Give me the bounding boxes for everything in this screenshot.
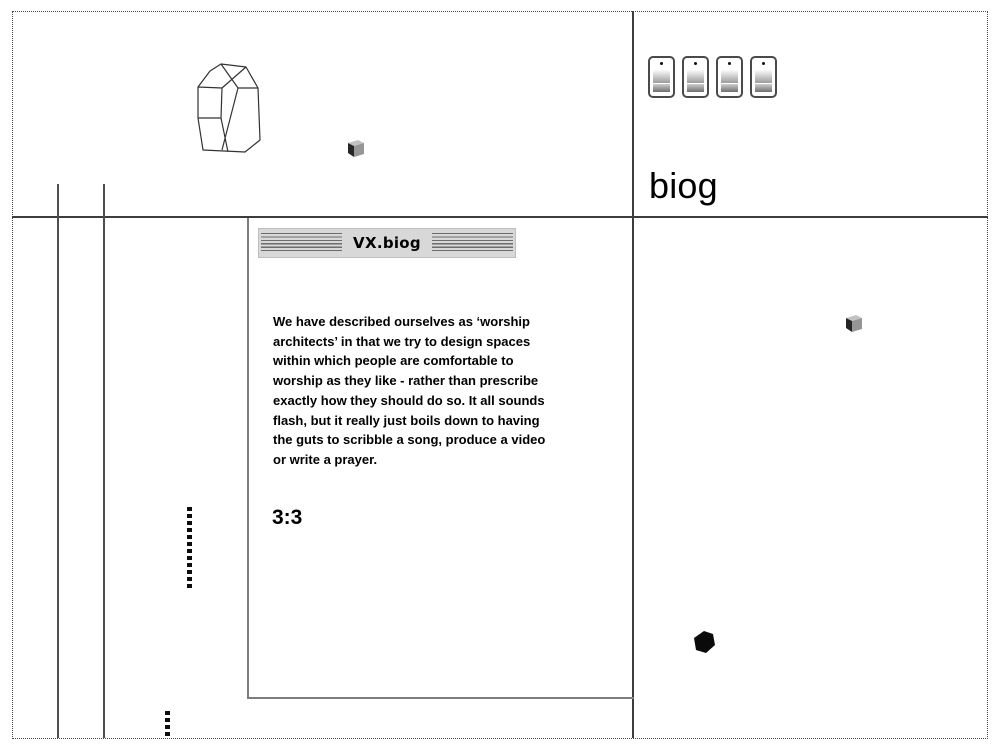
body-text-line: exactly how they should do so. It all so…	[273, 391, 545, 411]
switch-band	[721, 84, 738, 92]
titlebar-stripes-right	[432, 233, 513, 253]
body-text-line: worship as they like - rather than presc…	[273, 371, 545, 391]
black-cube-icon[interactable]	[694, 631, 716, 654]
dotted-line-accent	[187, 507, 192, 588]
switch-dot	[728, 62, 731, 65]
switch-band	[687, 84, 704, 92]
verse-reference: 3:3	[272, 506, 302, 530]
switch-icon-4[interactable]	[750, 56, 777, 98]
panel-left-border	[247, 218, 249, 699]
body-text-line: We have described ourselves as ‘worship	[273, 312, 545, 332]
switch-band	[755, 70, 772, 83]
cube-icon[interactable]	[345, 138, 365, 158]
switch-band	[653, 70, 670, 83]
switch-band	[687, 70, 704, 83]
switch-band	[755, 84, 772, 92]
switch-dot	[762, 62, 765, 65]
panel-title: VX.biog	[344, 234, 430, 252]
body-text-line: or write a prayer.	[273, 450, 545, 470]
titlebar-stripes-left	[261, 233, 342, 253]
body-text: We have described ourselves as ‘worship …	[273, 312, 545, 470]
switch-icon-3[interactable]	[716, 56, 743, 98]
switch-icon-1[interactable]	[648, 56, 675, 98]
dotted-line-accent-short	[165, 711, 170, 737]
body-text-line: within which people are comfortable to	[273, 351, 545, 371]
main-vertical-rule	[632, 11, 634, 738]
switch-dot	[694, 62, 697, 65]
left-rule-2	[103, 184, 105, 738]
left-rule-1	[57, 184, 59, 738]
switch-band	[721, 70, 738, 83]
body-text-line: architects’ in that we try to design spa…	[273, 332, 545, 352]
page-title: biog	[649, 167, 718, 205]
switch-icon-row	[648, 56, 777, 98]
body-text-line: the guts to scribble a song, produce a v…	[273, 430, 545, 450]
panel-titlebar[interactable]: VX.biog	[258, 228, 516, 258]
cube-icon[interactable]	[843, 313, 863, 333]
main-horizontal-rule	[12, 216, 988, 218]
body-text-line: flash, but it really just boils down to …	[273, 411, 545, 431]
switch-dot	[660, 62, 663, 65]
page: biog VX.biog We have described ourselves…	[0, 0, 1000, 750]
switch-icon-2[interactable]	[682, 56, 709, 98]
switch-band	[653, 84, 670, 92]
panel-bottom-border	[247, 697, 634, 699]
crystal-wireframe-icon[interactable]	[190, 58, 268, 158]
